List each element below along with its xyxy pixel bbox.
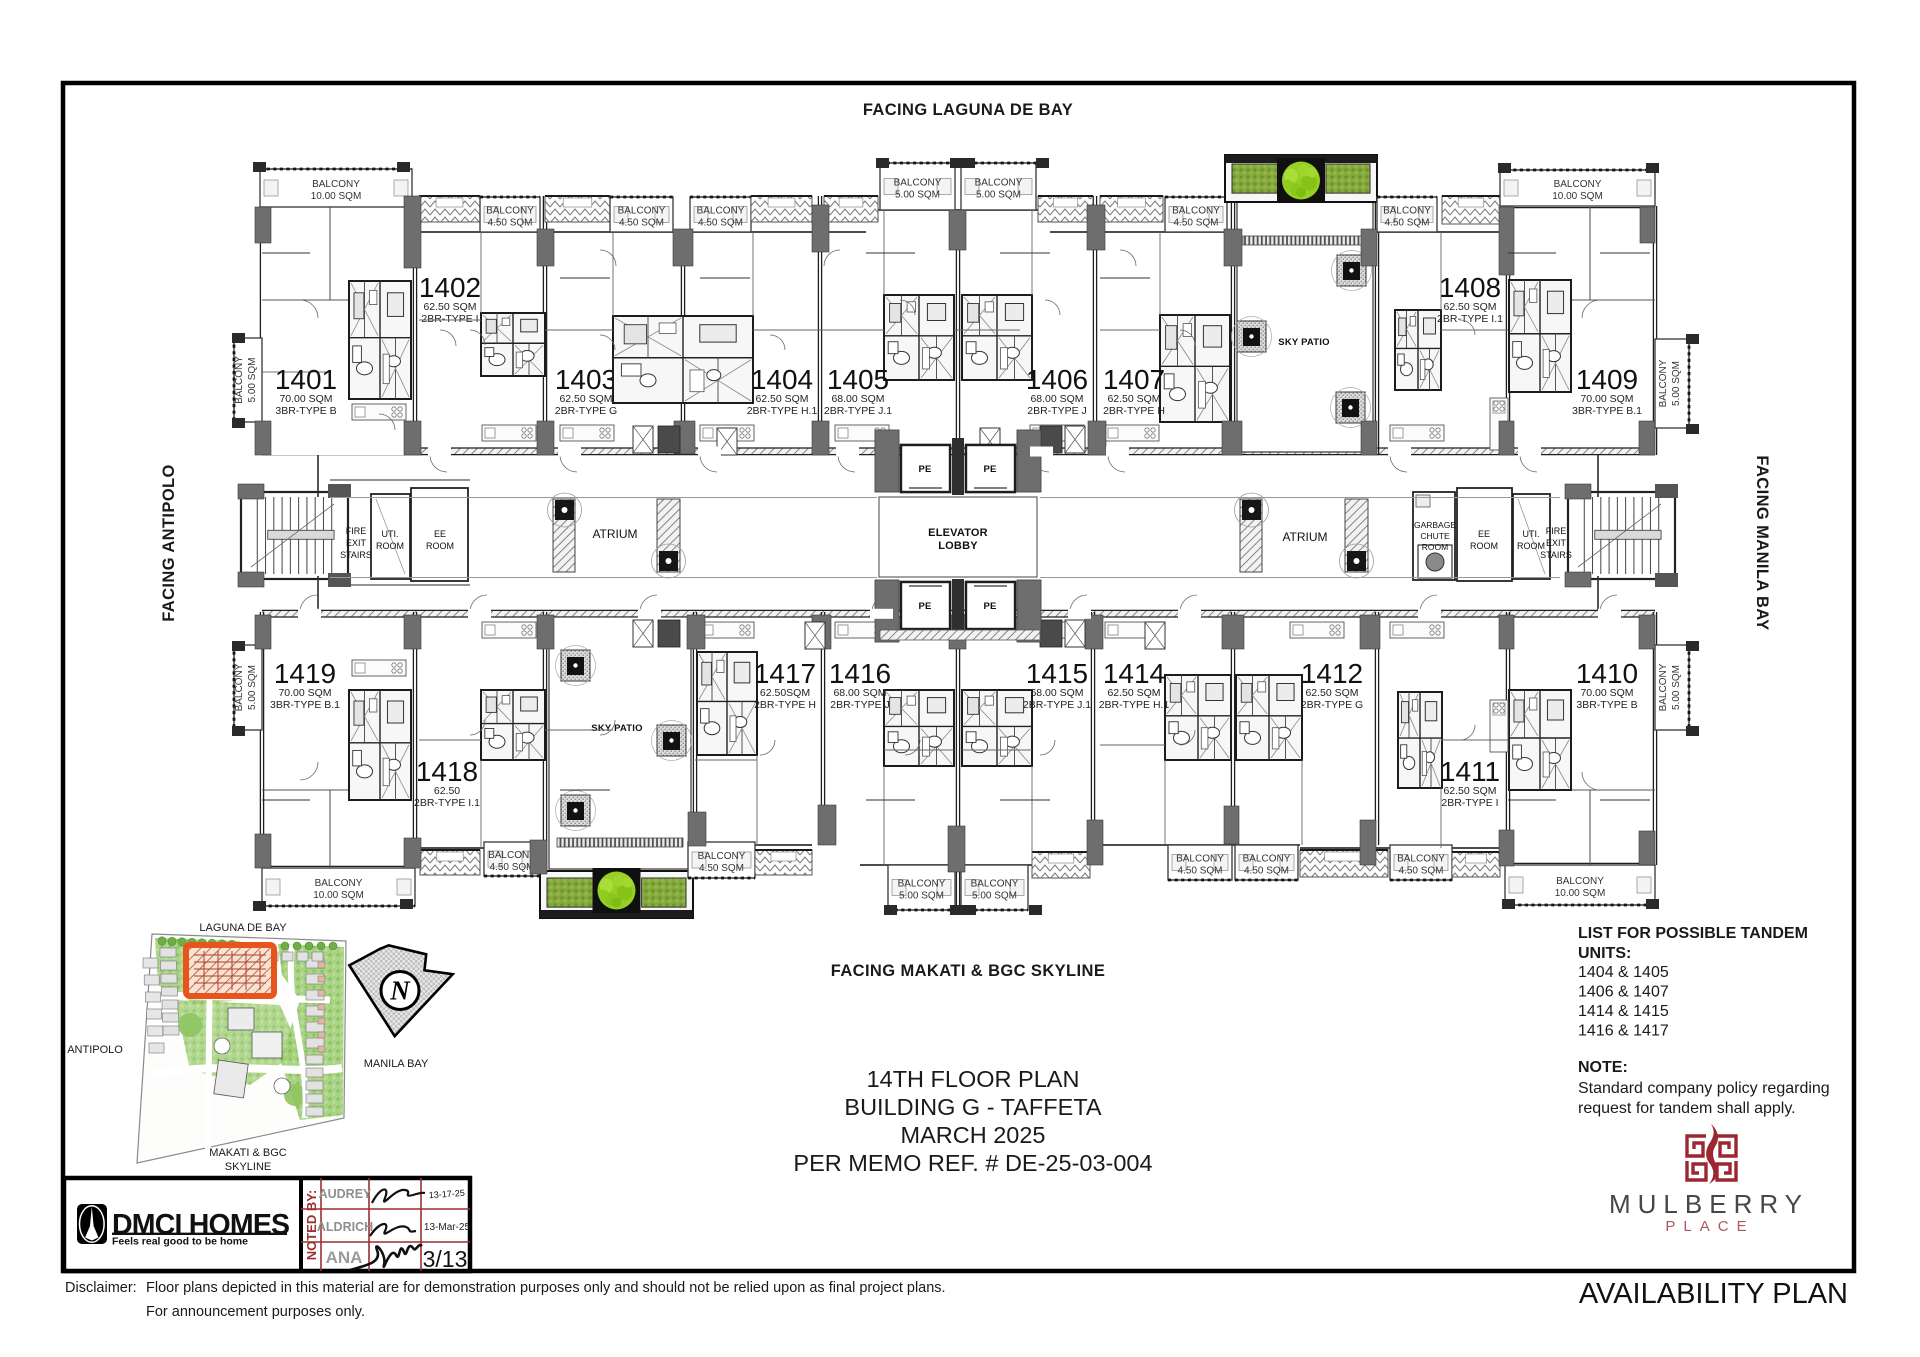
- svg-text:62.50 SQM: 62.50 SQM: [1305, 687, 1358, 699]
- svg-text:1402: 1402: [419, 272, 481, 303]
- svg-text:STAIRS: STAIRS: [340, 550, 372, 560]
- svg-text:70.00 SQM: 70.00 SQM: [278, 687, 331, 699]
- svg-text:2BR-TYPE H.1: 2BR-TYPE H.1: [1099, 699, 1170, 711]
- svg-text:BALCONY: BALCONY: [898, 879, 946, 890]
- svg-text:4.50 SQM: 4.50 SQM: [1244, 866, 1289, 877]
- svg-text:3BR-TYPE B: 3BR-TYPE B: [1576, 699, 1637, 711]
- svg-text:1408: 1408: [1439, 272, 1501, 303]
- svg-text:ROOM: ROOM: [1470, 541, 1498, 551]
- svg-text:EE: EE: [1478, 529, 1490, 539]
- svg-text:1415: 1415: [1026, 658, 1088, 689]
- svg-text:2BR-TYPE I.1: 2BR-TYPE I.1: [1437, 313, 1503, 325]
- svg-text:BALCONY: BALCONY: [1243, 854, 1291, 865]
- svg-text:68.00 SQM: 68.00 SQM: [1030, 687, 1083, 699]
- svg-text:3BR-TYPE B: 3BR-TYPE B: [275, 405, 336, 417]
- svg-text:2BR-TYPE H: 2BR-TYPE H: [1103, 405, 1165, 417]
- svg-text:AVAILABILITY PLAN: AVAILABILITY PLAN: [1579, 1278, 1848, 1310]
- svg-text:62.50 SQM: 62.50 SQM: [1107, 687, 1160, 699]
- svg-text:EXIT: EXIT: [346, 538, 367, 548]
- svg-text:ANTIPOLO: ANTIPOLO: [67, 1044, 123, 1056]
- svg-text:70.00 SQM: 70.00 SQM: [1580, 393, 1633, 405]
- svg-text:5.00 SQM: 5.00 SQM: [247, 665, 258, 710]
- svg-text:ROOM: ROOM: [1422, 542, 1448, 552]
- svg-text:NOTE:: NOTE:: [1578, 1059, 1628, 1076]
- svg-text:For announcement purposes only: For announcement purposes only.: [146, 1304, 365, 1320]
- svg-text:10.00 SQM: 10.00 SQM: [311, 191, 362, 202]
- svg-text:1412: 1412: [1301, 658, 1363, 689]
- svg-text:5.00 SQM: 5.00 SQM: [976, 190, 1021, 201]
- svg-text:13-Mar-25: 13-Mar-25: [424, 1222, 471, 1233]
- svg-text:MANILA BAY: MANILA BAY: [364, 1058, 429, 1070]
- svg-text:3/13: 3/13: [423, 1246, 468, 1272]
- svg-text:LIST FOR POSSIBLE TANDEM: LIST FOR POSSIBLE TANDEM: [1578, 925, 1808, 942]
- svg-text:70.00 SQM: 70.00 SQM: [279, 393, 332, 405]
- svg-text:4.50 SQM: 4.50 SQM: [698, 218, 743, 229]
- svg-text:1405: 1405: [827, 364, 889, 395]
- svg-text:BALCONY: BALCONY: [1554, 179, 1602, 190]
- svg-text:BALCONY: BALCONY: [486, 206, 534, 217]
- svg-text:FACING LAGUNA DE BAY: FACING LAGUNA DE BAY: [863, 101, 1073, 119]
- svg-text:EXIT: EXIT: [1546, 538, 1567, 548]
- svg-text:Standard company policy regard: Standard company policy regarding: [1578, 1080, 1830, 1097]
- svg-text:3BR-TYPE B.1: 3BR-TYPE B.1: [1572, 405, 1642, 417]
- svg-text:FIRE: FIRE: [1546, 526, 1567, 536]
- svg-text:2BR-TYPE G: 2BR-TYPE G: [555, 405, 617, 417]
- svg-text:BALCONY: BALCONY: [1397, 854, 1445, 865]
- svg-text:BALCONY: BALCONY: [698, 851, 746, 862]
- svg-text:BALCONY: BALCONY: [315, 878, 363, 889]
- svg-text:BALCONY: BALCONY: [234, 356, 245, 404]
- svg-text:CHUTE: CHUTE: [1420, 531, 1450, 541]
- svg-text:2BR-TYPE J.1: 2BR-TYPE J.1: [824, 405, 892, 417]
- svg-text:EE: EE: [434, 529, 446, 539]
- svg-text:PER MEMO REF. # DE-25-03-004: PER MEMO REF. # DE-25-03-004: [793, 1150, 1152, 1176]
- svg-text:5.00 SQM: 5.00 SQM: [247, 357, 258, 402]
- svg-text:1404 & 1405: 1404 & 1405: [1578, 964, 1669, 981]
- svg-text:FACING ANTIPOLO: FACING ANTIPOLO: [160, 464, 178, 622]
- svg-text:BALCONY: BALCONY: [975, 178, 1023, 189]
- svg-text:1407: 1407: [1103, 364, 1165, 395]
- svg-text:1411: 1411: [1440, 756, 1500, 787]
- svg-text:1406 & 1407: 1406 & 1407: [1578, 984, 1669, 1001]
- svg-text:Disclaimer:: Disclaimer:: [65, 1280, 137, 1296]
- svg-text:1414 & 1415: 1414 & 1415: [1578, 1003, 1669, 1020]
- svg-text:STAIRS: STAIRS: [1540, 550, 1572, 560]
- svg-text:1414: 1414: [1103, 658, 1165, 689]
- svg-text:BALCONY: BALCONY: [971, 879, 1019, 890]
- svg-text:1406: 1406: [1026, 364, 1088, 395]
- svg-text:4.50 SQM: 4.50 SQM: [1173, 218, 1218, 229]
- svg-text:5.00 SQM: 5.00 SQM: [1671, 665, 1682, 710]
- svg-text:2BR-TYPE H: 2BR-TYPE H: [754, 699, 816, 711]
- svg-text:ATRIUM: ATRIUM: [592, 527, 637, 541]
- svg-text:62.50: 62.50: [434, 785, 460, 797]
- svg-text:5.00 SQM: 5.00 SQM: [972, 891, 1017, 902]
- svg-text:PE: PE: [983, 601, 996, 612]
- svg-text:PLACE: PLACE: [1665, 1218, 1754, 1235]
- svg-text:BALCONY: BALCONY: [488, 850, 536, 861]
- svg-text:N: N: [389, 976, 411, 1006]
- svg-text:ROOM: ROOM: [426, 541, 454, 551]
- svg-text:BALCONY: BALCONY: [1658, 663, 1669, 711]
- svg-text:62.50SQM: 62.50SQM: [760, 687, 810, 699]
- svg-text:5.00 SQM: 5.00 SQM: [899, 891, 944, 902]
- svg-text:2BR-TYPE J: 2BR-TYPE J: [830, 699, 890, 711]
- svg-text:1409: 1409: [1576, 364, 1638, 395]
- svg-text:PE: PE: [983, 464, 996, 475]
- svg-text:SKY PATIO: SKY PATIO: [1278, 337, 1329, 348]
- svg-text:BALCONY: BALCONY: [894, 178, 942, 189]
- svg-text:BALCONY: BALCONY: [697, 206, 745, 217]
- svg-text:SKY PATIO: SKY PATIO: [591, 723, 642, 734]
- svg-text:UNITS:: UNITS:: [1578, 945, 1631, 962]
- svg-text:14TH FLOOR PLAN: 14TH FLOOR PLAN: [867, 1066, 1080, 1092]
- svg-text:Feels real good to be home: Feels real good to be home: [112, 1236, 248, 1248]
- svg-text:2BR-TYPE I: 2BR-TYPE I: [421, 313, 478, 325]
- svg-text:1410: 1410: [1576, 658, 1638, 689]
- svg-text:1417: 1417: [754, 658, 816, 689]
- svg-text:4.50 SQM: 4.50 SQM: [1384, 218, 1429, 229]
- svg-text:BALCONY: BALCONY: [1172, 206, 1220, 217]
- svg-text:BALCONY: BALCONY: [312, 179, 360, 190]
- svg-text:UTI.: UTI.: [382, 529, 399, 539]
- svg-text:1416: 1416: [829, 658, 891, 689]
- svg-text:70.00 SQM: 70.00 SQM: [1580, 687, 1633, 699]
- svg-text:PE: PE: [918, 464, 931, 475]
- svg-text:4.50 SQM: 4.50 SQM: [1398, 866, 1443, 877]
- svg-text:2BR-TYPE J: 2BR-TYPE J: [1027, 405, 1087, 417]
- svg-text:BALCONY: BALCONY: [1176, 854, 1224, 865]
- svg-text:2BR-TYPE I.1: 2BR-TYPE I.1: [414, 797, 480, 809]
- svg-text:62.50 SQM: 62.50 SQM: [423, 301, 476, 313]
- svg-text:PE: PE: [918, 601, 931, 612]
- svg-text:ROOM: ROOM: [376, 541, 404, 551]
- svg-text:1419: 1419: [274, 658, 336, 689]
- svg-text:68.00 SQM: 68.00 SQM: [831, 393, 884, 405]
- svg-text:1401: 1401: [275, 364, 337, 395]
- svg-text:1418: 1418: [416, 756, 478, 787]
- svg-text:4.50 SQM: 4.50 SQM: [489, 862, 534, 873]
- svg-text:ATRIUM: ATRIUM: [1282, 530, 1327, 544]
- svg-text:68.00 SQM: 68.00 SQM: [1030, 393, 1083, 405]
- svg-text:2BR-TYPE G: 2BR-TYPE G: [1301, 699, 1363, 711]
- svg-text:1416 & 1417: 1416 & 1417: [1578, 1023, 1669, 1040]
- svg-text:GARBAGE: GARBAGE: [1414, 520, 1456, 530]
- svg-text:4.50 SQM: 4.50 SQM: [619, 218, 664, 229]
- svg-text:request for tandem shall apply: request for tandem shall apply.: [1578, 1100, 1796, 1117]
- svg-text:SKYLINE: SKYLINE: [225, 1161, 271, 1173]
- svg-text:5.00 SQM: 5.00 SQM: [895, 190, 940, 201]
- svg-text:3BR-TYPE B.1: 3BR-TYPE B.1: [270, 699, 340, 711]
- svg-text:BALCONY: BALCONY: [618, 206, 666, 217]
- svg-text:10.00 SQM: 10.00 SQM: [313, 890, 364, 901]
- svg-text:62.50 SQM: 62.50 SQM: [755, 393, 808, 405]
- svg-text:2BR-TYPE H.1: 2BR-TYPE H.1: [747, 405, 818, 417]
- svg-text:1403: 1403: [555, 364, 617, 395]
- svg-text:2BR-TYPE I: 2BR-TYPE I: [1441, 797, 1498, 809]
- svg-text:68.00 SQM: 68.00 SQM: [833, 687, 886, 699]
- svg-text:10.00 SQM: 10.00 SQM: [1555, 888, 1606, 899]
- svg-text:ANA: ANA: [326, 1248, 363, 1267]
- svg-text:ELEVATOR: ELEVATOR: [928, 527, 988, 539]
- svg-text:BALCONY: BALCONY: [1658, 359, 1669, 407]
- svg-text:BALCONY: BALCONY: [1383, 206, 1431, 217]
- svg-text:4.50 SQM: 4.50 SQM: [1177, 866, 1222, 877]
- svg-text:62.50 SQM: 62.50 SQM: [1443, 785, 1496, 797]
- svg-text:AUDREY: AUDREY: [319, 1187, 372, 1201]
- svg-text:62.50 SQM: 62.50 SQM: [1443, 301, 1496, 313]
- svg-text:1404: 1404: [751, 364, 813, 395]
- svg-text:BUILDING G - TAFFETA: BUILDING G - TAFFETA: [844, 1094, 1102, 1120]
- svg-text:Floor plans depicted in this m: Floor plans depicted in this material ar…: [146, 1280, 946, 1296]
- svg-text:UTI.: UTI.: [1523, 529, 1540, 539]
- svg-text:62.50 SQM: 62.50 SQM: [1107, 393, 1160, 405]
- svg-text:4.50 SQM: 4.50 SQM: [487, 218, 532, 229]
- svg-text:4.50 SQM: 4.50 SQM: [699, 863, 744, 874]
- svg-text:FACING MANILA BAY: FACING MANILA BAY: [1753, 455, 1771, 630]
- svg-text:BALCONY: BALCONY: [234, 663, 245, 711]
- svg-text:FACING MAKATI & BGC SKYLINE: FACING MAKATI & BGC SKYLINE: [831, 962, 1106, 980]
- svg-text:FIRE: FIRE: [346, 526, 367, 536]
- svg-text:LAGUNA DE BAY: LAGUNA DE BAY: [199, 922, 287, 934]
- svg-text:5.00 SQM: 5.00 SQM: [1671, 361, 1682, 406]
- svg-text:10.00 SQM: 10.00 SQM: [1552, 191, 1603, 202]
- svg-text:MARCH 2025: MARCH 2025: [901, 1122, 1046, 1148]
- svg-text:ALDRICH: ALDRICH: [317, 1220, 373, 1234]
- svg-text:62.50 SQM: 62.50 SQM: [559, 393, 612, 405]
- svg-text:BALCONY: BALCONY: [1556, 876, 1604, 887]
- svg-text:MULBERRY: MULBERRY: [1609, 1189, 1809, 1219]
- svg-text:LOBBY: LOBBY: [938, 540, 978, 552]
- svg-text:MAKATI & BGC: MAKATI & BGC: [209, 1147, 286, 1159]
- svg-text:2BR-TYPE J.1: 2BR-TYPE J.1: [1023, 699, 1091, 711]
